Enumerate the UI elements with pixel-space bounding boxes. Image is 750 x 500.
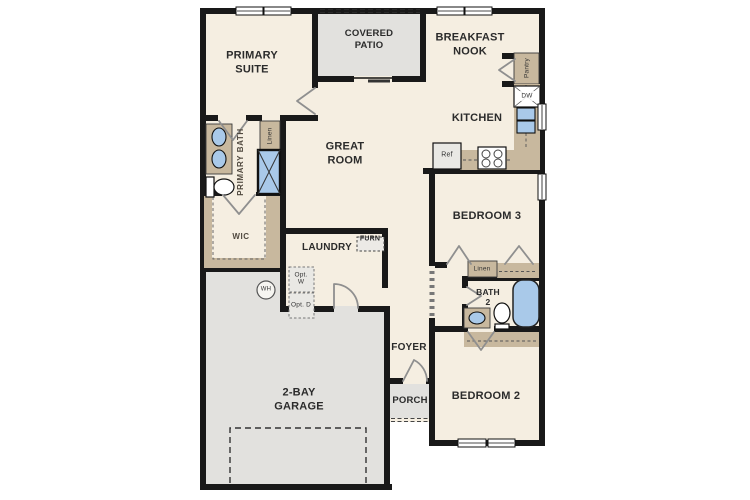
linen-primary-label: Linen — [266, 128, 273, 145]
wic-floor — [212, 196, 266, 258]
pantry-label: Pantry — [523, 58, 530, 78]
garage-door-outline — [230, 428, 366, 483]
primary-toilet-bowl — [214, 179, 234, 195]
door-bedroom3 — [447, 246, 471, 264]
opt-dryer-label: Opt. D — [291, 301, 311, 308]
refrigerator-label: Ref — [441, 152, 453, 161]
bath2-sink — [469, 312, 485, 324]
room-label-covered-patio: COVERED PATIO — [337, 28, 401, 52]
door-bedroom3-closet — [505, 246, 533, 264]
room-label-porch: PORCH — [392, 395, 427, 407]
bathtub — [513, 280, 539, 327]
room-label-laundry: LAUNDRY — [302, 242, 352, 255]
water-heater-label: WH — [261, 287, 271, 294]
opt-washer-label: Opt. W — [291, 272, 311, 287]
burner-icon — [494, 159, 502, 167]
stove — [478, 147, 506, 169]
primary-sink-2 — [212, 150, 226, 168]
room-label-wic: WIC — [232, 232, 249, 242]
sliding-door-leaf — [368, 80, 390, 83]
burner-icon — [494, 150, 502, 158]
primary-toilet-tank — [206, 177, 214, 197]
door-primary-suite — [297, 88, 315, 114]
room-label-primary-bath: PRIMARY BATH — [236, 124, 246, 200]
floor-plan: PRIMARY SUITE COVERED PATIO BREAKFAST NO… — [0, 0, 750, 500]
room-label-breakfast-nook: BREAKFAST NOOK — [424, 31, 516, 59]
room-label-foyer: FOYER — [391, 342, 426, 355]
room-label-bath2: BATH 2 — [473, 287, 503, 307]
patio-edge-dashed — [320, 10, 420, 13]
bedroom2-closet-shelf — [464, 332, 539, 347]
door-front — [403, 360, 427, 381]
primary-sink-1 — [212, 128, 226, 146]
plan-graphics — [0, 0, 750, 500]
door-pantry — [499, 59, 515, 81]
room-label-kitchen: KITCHEN — [452, 112, 502, 126]
dishwasher-label: DW — [521, 92, 532, 99]
porch-edge-dashed — [391, 419, 429, 422]
door-garage-entry — [334, 284, 358, 308]
room-label-garage: 2-BAY GARAGE — [264, 386, 334, 414]
room-label-primary-suite: PRIMARY SUITE — [217, 49, 287, 77]
burner-icon — [482, 150, 490, 158]
room-label-bedroom3: BEDROOM 3 — [453, 210, 521, 224]
linen-hall-label: Linen — [474, 265, 491, 272]
kitchen-sink-1 — [517, 108, 535, 120]
bedroom3-closet-shelf — [497, 263, 539, 278]
bath2-toilet-base — [495, 324, 509, 329]
kitchen-sink-2 — [517, 121, 535, 133]
room-label-great-room: GREAT ROOM — [317, 140, 373, 168]
burner-icon — [482, 159, 490, 167]
room-label-bedroom2: BEDROOM 2 — [452, 390, 520, 404]
furnace-label: FURN — [360, 236, 380, 245]
